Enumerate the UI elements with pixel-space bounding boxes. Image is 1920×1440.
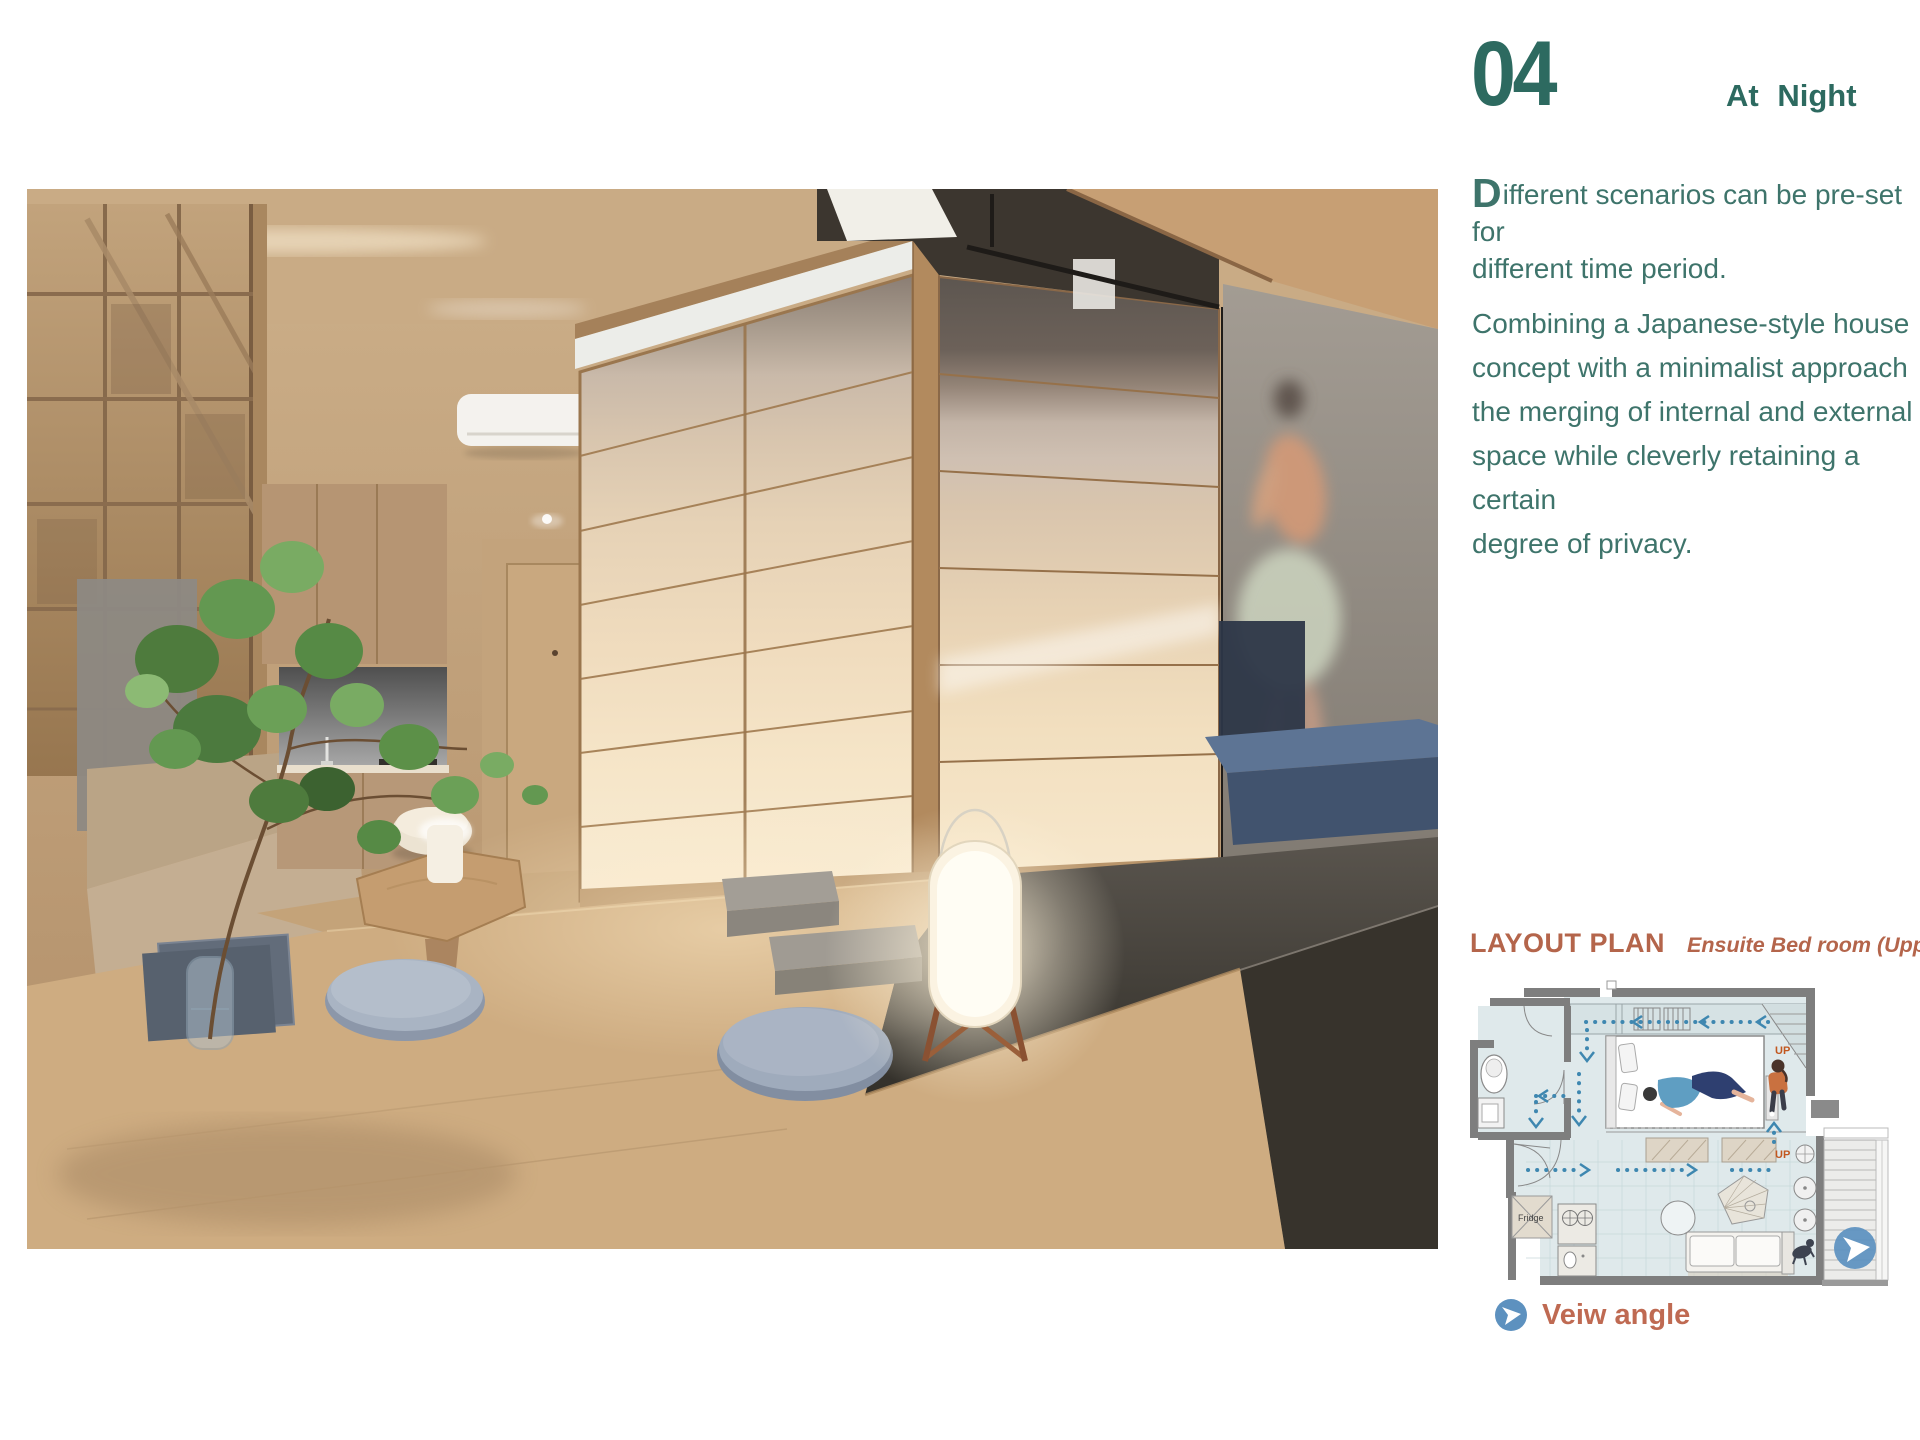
plan-laundry [1794,1145,1816,1231]
view-angle-icon [1494,1298,1528,1332]
description-paragraph-2: Combining a Japanese-style house concept… [1472,302,1920,566]
plan-up-label-2: UP [1775,1149,1790,1161]
plan-sofa [1686,1232,1794,1276]
view-angle-legend: Veiw angle [1494,1298,1690,1332]
view-angle-label: Veiw angle [1542,1299,1690,1332]
plan-round-table [1661,1201,1695,1235]
layout-plan-title: LAYOUT PLAN [1470,928,1665,959]
section-title: At Night [1726,78,1857,114]
layout-plan-header: LAYOUT PLAN Ensuite Bed room (Upper Leve… [1470,928,1920,959]
layout-plan-subtitle: Ensuite Bed room (Upper Level) [1687,933,1920,958]
description-paragraph-1: Different scenarios can be pre-set for d… [1472,176,1920,287]
floor-cushion-left [325,959,485,1041]
plan-view-angle-icon [1834,1227,1876,1269]
paragraph-line: space while cleverly retaining a certain [1472,434,1920,522]
paragraph-line: different time period. [1472,250,1920,287]
interior-rendering [27,189,1438,1249]
paragraph-line: concept with a minimalist approach [1472,346,1920,390]
plan-up-label-1: UP [1775,1045,1790,1057]
ceiling-light [427,300,587,318]
lantern-lamp [825,804,1125,1104]
page-number: 04 [1457,22,1554,127]
dropcap: D [1472,170,1502,216]
plan-fridge-label: Fridge [1518,1213,1544,1223]
paragraph-line: Combining a Japanese-style house [1472,302,1920,346]
paragraph-line: degree of privacy. [1472,522,1920,566]
paragraph-line: Different scenarios can be pre-set for [1472,176,1920,250]
floor-plan: UP UP Fridge [1466,978,1920,1296]
paragraph-line: the merging of internal and external [1472,390,1920,434]
presentation-page: 04 At Night Different scenarios can be p… [0,0,1920,1440]
interior-rendering-art [27,189,1438,1249]
floor-plan-drawing: UP UP Fridge [1466,978,1920,1296]
plan-top-tab [1607,981,1616,989]
